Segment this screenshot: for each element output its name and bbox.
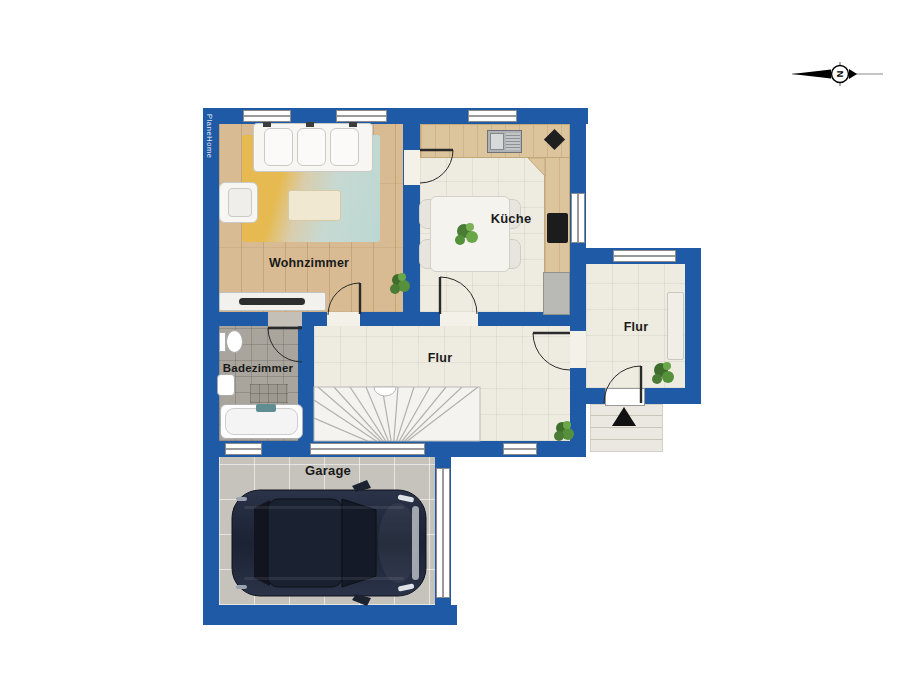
- plant-dining-table: [455, 223, 478, 245]
- entrance-door: [604, 366, 641, 403]
- plan-overlay: [0, 0, 907, 680]
- floor-plan: Wohnzimmer Küche Badezimmer Flur Flur Ga…: [0, 0, 907, 680]
- door-wohnzimmer-kueche: [420, 150, 453, 183]
- car: [232, 480, 426, 606]
- plant-flur: [554, 421, 574, 441]
- stairs: [314, 387, 480, 452]
- door-kueche-flur: [440, 277, 477, 314]
- door-wohnzimmer-flur: [328, 283, 360, 315]
- door-badezimmer: [268, 328, 302, 362]
- plant-entry-flur: [652, 362, 674, 384]
- plant-wohnzimmer: [390, 273, 410, 294]
- compass-north-label: N: [835, 71, 845, 78]
- door-flur-entry: [533, 333, 570, 370]
- counter-chamfer: [528, 158, 545, 176]
- entrance-arrow-icon: [612, 407, 636, 426]
- north-compass-icon: N: [790, 56, 886, 92]
